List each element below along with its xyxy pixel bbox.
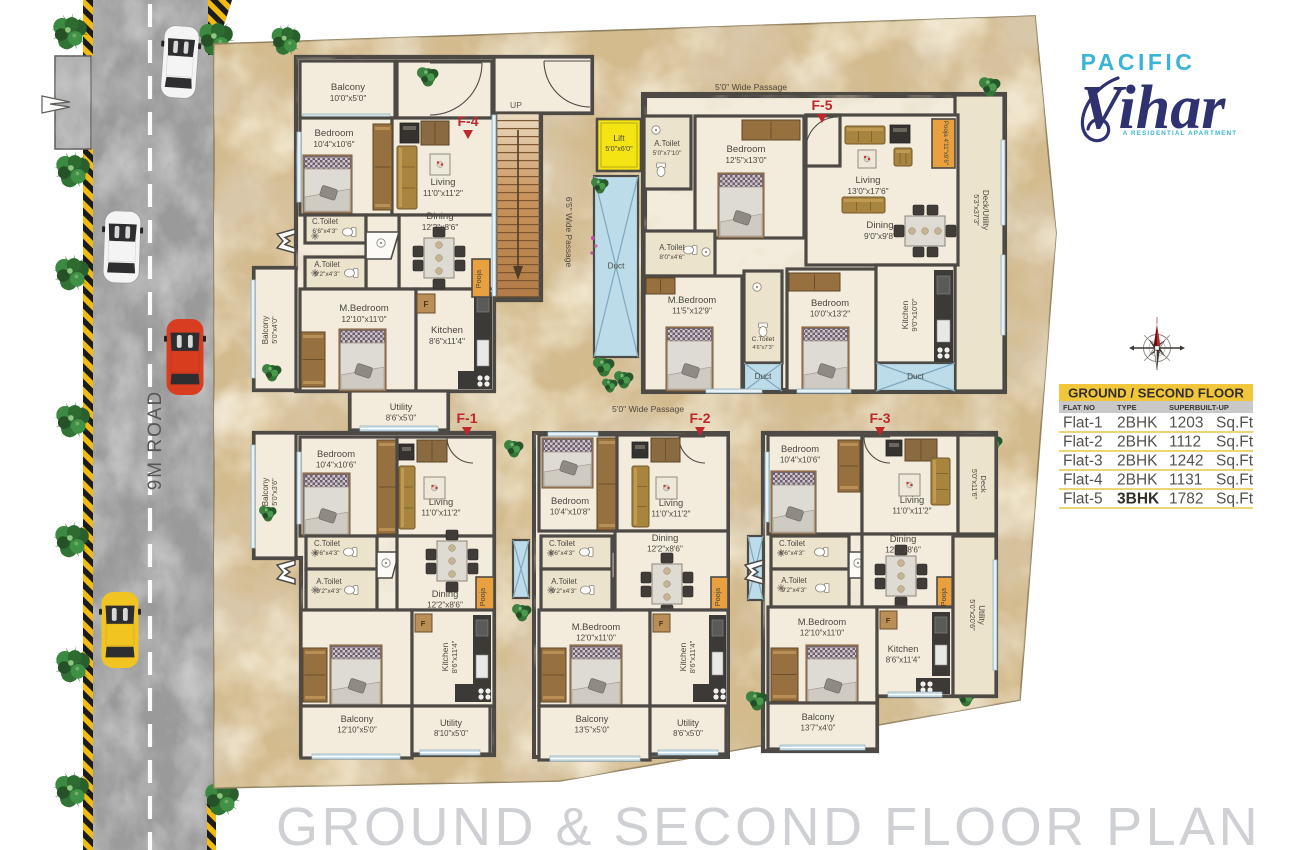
svg-text:Flat-2: Flat-2	[1063, 434, 1103, 451]
svg-text:Duct: Duct	[755, 372, 773, 381]
svg-text:Balcony: Balcony	[261, 316, 270, 344]
svg-text:C.Toilet: C.Toilet	[314, 539, 341, 548]
svg-text:M.Bedroom: M.Bedroom	[668, 294, 717, 305]
svg-text:Duct: Duct	[907, 372, 925, 381]
svg-text:12'2"x8'6": 12'2"x8'6"	[885, 546, 921, 555]
svg-text:FLAT NO: FLAT NO	[1063, 403, 1095, 412]
svg-text:12'0"x11'0": 12'0"x11'0"	[576, 634, 616, 643]
svg-text:5'0"x7'10": 5'0"x7'10"	[653, 150, 682, 157]
svg-text:10'4"x10'6": 10'4"x10'6"	[780, 456, 820, 465]
svg-text:9'2"x4'3": 9'2"x4'3"	[316, 588, 342, 595]
svg-text:Balcony: Balcony	[341, 714, 374, 724]
svg-text:A RESIDENTIAL APARTMENT: A RESIDENTIAL APARTMENT	[1123, 130, 1238, 137]
svg-text:3BHK: 3BHK	[1117, 491, 1160, 508]
svg-text:11'0"x11'2": 11'0"x11'2"	[651, 510, 690, 519]
svg-text:6'5" Wide Passage: 6'5" Wide Passage	[564, 197, 574, 268]
svg-text:2BHK: 2BHK	[1117, 415, 1158, 432]
svg-text:13'7"x4'0": 13'7"x4'0"	[801, 723, 836, 732]
svg-text:F: F	[659, 619, 664, 628]
svg-text:Utility: Utility	[440, 718, 462, 728]
svg-text:9'0"x9'8": 9'0"x9'8"	[864, 231, 896, 241]
svg-text:12'2"x8'6": 12'2"x8'6"	[427, 601, 463, 610]
svg-text:4'6"x7'3": 4'6"x7'3"	[752, 345, 773, 351]
svg-text:Sq.Ft: Sq.Ft	[1216, 415, 1254, 432]
svg-text:5'0"x4'0": 5'0"x4'0"	[270, 316, 279, 344]
svg-text:Bedroom: Bedroom	[727, 144, 766, 155]
svg-text:1242: 1242	[1169, 453, 1203, 470]
svg-text:11'0"x11'2": 11'0"x11'2"	[892, 507, 931, 516]
svg-text:9'2"x4'3": 9'2"x4'3"	[314, 271, 340, 278]
svg-text:8'0"x4'6": 8'0"x4'6"	[659, 254, 685, 261]
svg-text:Kitchen: Kitchen	[678, 642, 688, 671]
svg-text:5'0"x3'6": 5'0"x3'6"	[270, 478, 279, 506]
svg-text:6'6"x4'3": 6'6"x4'3"	[779, 550, 805, 557]
svg-text:Deck: Deck	[979, 475, 988, 493]
svg-text:Balcony: Balcony	[576, 714, 609, 724]
svg-text:Pooja: Pooja	[478, 588, 487, 606]
svg-text:Duct: Duct	[608, 262, 626, 271]
svg-text:12'10"x11'0": 12'10"x11'0"	[800, 629, 844, 638]
svg-text:9M ROAD: 9M ROAD	[145, 390, 166, 491]
svg-text:Sq.Ft: Sq.Ft	[1216, 434, 1254, 451]
svg-text:C.Toilet: C.Toilet	[779, 539, 806, 548]
svg-text:11'0"x11'2": 11'0"x11'2"	[423, 188, 463, 198]
svg-text:Living: Living	[855, 175, 880, 186]
svg-text:A.Toilet: A.Toilet	[551, 577, 577, 586]
svg-text:1112: 1112	[1169, 434, 1201, 451]
svg-text:11'5"x12'9": 11'5"x12'9"	[672, 307, 712, 316]
svg-text:Living: Living	[430, 177, 455, 188]
svg-text:A.Toilet: A.Toilet	[316, 577, 342, 586]
svg-text:Bedroom: Bedroom	[811, 297, 849, 308]
svg-text:5'0"x11'6": 5'0"x11'6"	[970, 469, 977, 500]
svg-text:10'0"x13'2": 10'0"x13'2"	[810, 310, 850, 319]
svg-text:Deck/Utility: Deck/Utility	[981, 190, 990, 230]
svg-text:TYPE: TYPE	[1117, 403, 1137, 412]
svg-text:F-3: F-3	[870, 410, 891, 426]
svg-text:Flat-5: Flat-5	[1063, 491, 1103, 508]
svg-text:Pooja: Pooja	[713, 588, 722, 606]
svg-text:M.Bedroom: M.Bedroom	[798, 616, 847, 627]
svg-text:Dining: Dining	[432, 588, 459, 599]
svg-text:GROUND & SECOND FLOOR PLAN: GROUND & SECOND FLOOR PLAN	[276, 797, 1261, 850]
svg-text:Balcony: Balcony	[331, 82, 365, 93]
svg-text:12'10"x5'0": 12'10"x5'0"	[337, 725, 377, 734]
svg-text:1131: 1131	[1169, 472, 1202, 489]
svg-text:1203: 1203	[1169, 415, 1203, 432]
svg-text:10'4"x10'6": 10'4"x10'6"	[316, 461, 356, 470]
svg-text:5'3"x37'3": 5'3"x37'3"	[972, 194, 981, 226]
svg-text:M.Bedroom: M.Bedroom	[339, 303, 389, 314]
svg-text:Living: Living	[900, 494, 925, 505]
svg-text:F: F	[424, 300, 429, 309]
svg-text:5'0"x6'0": 5'0"x6'0"	[605, 144, 633, 153]
svg-text:F: F	[421, 619, 426, 628]
svg-text:Sq.Ft: Sq.Ft	[1216, 472, 1254, 489]
svg-text:Bedroom: Bedroom	[315, 128, 354, 139]
svg-text:Flat-1: Flat-1	[1063, 415, 1103, 432]
svg-text:2BHK: 2BHK	[1117, 453, 1158, 470]
svg-text:Sq.Ft: Sq.Ft	[1216, 453, 1254, 470]
svg-text:8'6"x5'0": 8'6"x5'0"	[386, 413, 417, 422]
svg-text:12'2"x8'6": 12'2"x8'6"	[422, 222, 459, 232]
svg-text:12'10"x11'0": 12'10"x11'0"	[341, 314, 386, 324]
svg-text:13'5"x5'0": 13'5"x5'0"	[575, 725, 610, 734]
svg-text:Dining: Dining	[652, 532, 679, 543]
svg-text:UP: UP	[510, 100, 522, 110]
svg-text:9'0"x10'0": 9'0"x10'0"	[910, 298, 919, 332]
svg-text:10'0"x5'0": 10'0"x5'0"	[330, 93, 367, 103]
svg-text:Flat-4: Flat-4	[1063, 472, 1103, 489]
svg-text:Bedroom: Bedroom	[551, 495, 589, 506]
svg-text:A.Toilet: A.Toilet	[654, 139, 680, 148]
svg-text:F-2: F-2	[690, 410, 711, 426]
svg-text:A.Toilet: A.Toilet	[659, 243, 685, 252]
svg-text:Kitchen: Kitchen	[431, 325, 463, 336]
svg-text:Kitchen: Kitchen	[888, 644, 919, 654]
svg-text:Utility: Utility	[677, 718, 699, 728]
svg-text:Bedroom: Bedroom	[317, 448, 355, 459]
svg-text:PACIFIC: PACIFIC	[1081, 49, 1196, 75]
svg-text:12'2"x8'6": 12'2"x8'6"	[647, 545, 683, 554]
svg-text:Dining: Dining	[866, 220, 893, 231]
svg-text:Living: Living	[659, 497, 684, 508]
svg-text:Pooja: Pooja	[474, 270, 483, 288]
svg-text:8'6"x11'4": 8'6"x11'4"	[429, 336, 465, 346]
svg-text:12'5"x13'0": 12'5"x13'0"	[725, 155, 766, 165]
svg-text:8'6"x11'4": 8'6"x11'4"	[688, 640, 697, 673]
svg-text:2BHK: 2BHK	[1117, 472, 1158, 489]
svg-text:F: F	[886, 616, 891, 625]
svg-text:6'6"x4'3": 6'6"x4'3"	[312, 228, 338, 235]
svg-text:Kitchen: Kitchen	[440, 642, 450, 671]
svg-text:C.Toilet: C.Toilet	[549, 539, 576, 548]
svg-text:Living: Living	[429, 496, 454, 507]
svg-text:5'0" Wide Passage: 5'0" Wide Passage	[715, 82, 787, 92]
svg-text:1782: 1782	[1169, 491, 1203, 508]
svg-text:11'0"x11'2": 11'0"x11'2"	[421, 509, 460, 518]
svg-text:Flat-3: Flat-3	[1063, 453, 1103, 470]
svg-text:Sq.Ft: Sq.Ft	[1216, 491, 1254, 508]
svg-text:C.Toilet: C.Toilet	[752, 336, 775, 343]
svg-text:Dining: Dining	[426, 211, 453, 222]
svg-text:10'4"x10'8": 10'4"x10'8"	[550, 508, 590, 517]
svg-text:Utility: Utility	[977, 605, 986, 625]
svg-text:8'10"x5'0": 8'10"x5'0"	[434, 729, 468, 738]
svg-text:8'6"x5'0": 8'6"x5'0"	[673, 729, 703, 738]
svg-text:9'2"x4'3": 9'2"x4'3"	[781, 587, 807, 594]
svg-text:2BHK: 2BHK	[1117, 434, 1158, 451]
svg-text:Pooja: Pooja	[939, 588, 948, 606]
svg-text:Lift: Lift	[613, 133, 625, 143]
svg-text:Kitchen: Kitchen	[900, 300, 910, 329]
svg-text:Utility: Utility	[390, 402, 413, 412]
svg-text:Pooja 4'11"x9'6": Pooja 4'11"x9'6"	[942, 121, 949, 165]
svg-text:Balcony: Balcony	[261, 478, 270, 506]
svg-text:F-5: F-5	[812, 97, 833, 113]
svg-text:Bedroom: Bedroom	[781, 443, 819, 454]
svg-text:M.Bedroom: M.Bedroom	[572, 621, 621, 632]
svg-text:8'6"x11'4": 8'6"x11'4"	[450, 640, 459, 673]
svg-text:5'0" Wide Passage: 5'0" Wide Passage	[612, 404, 684, 414]
svg-text:10'4"x10'6": 10'4"x10'6"	[313, 139, 354, 149]
svg-text:Balcony: Balcony	[802, 712, 835, 722]
svg-text:SUPERBUILT-UP: SUPERBUILT-UP	[1169, 403, 1229, 412]
svg-text:9'2"x4'3": 9'2"x4'3"	[551, 588, 577, 595]
svg-text:13'0"x17'6": 13'0"x17'6"	[847, 186, 888, 196]
svg-text:A.Toilet: A.Toilet	[781, 576, 807, 585]
svg-text:F-4: F-4	[458, 113, 479, 129]
svg-text:6'6"x4'3": 6'6"x4'3"	[549, 550, 575, 557]
svg-text:A.Toilet: A.Toilet	[314, 260, 340, 269]
svg-text:Dining: Dining	[890, 533, 917, 544]
svg-text:6'6"x4'3": 6'6"x4'3"	[314, 550, 340, 557]
svg-text:8'6"x11'4": 8'6"x11'4"	[886, 655, 921, 664]
svg-text:F-1: F-1	[457, 410, 478, 426]
svg-text:5'0"x20'6": 5'0"x20'6"	[968, 599, 977, 631]
svg-text:GROUND / SECOND FLOOR: GROUND / SECOND FLOOR	[1068, 386, 1244, 401]
svg-text:C.Toilet: C.Toilet	[312, 217, 339, 226]
